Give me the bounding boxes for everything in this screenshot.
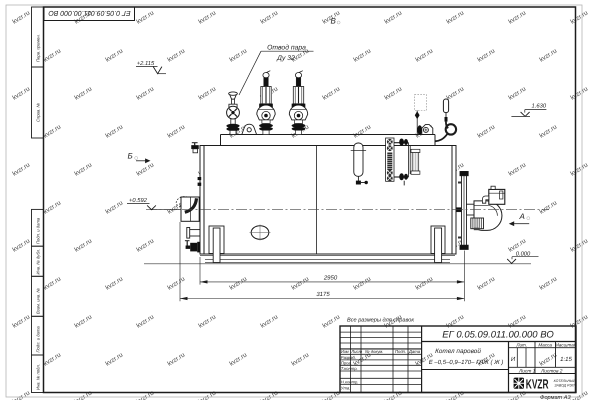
svg-text:ЗАВОД РЭП: ЗАВОД РЭП [554, 384, 575, 388]
svg-text:Перв. примен.: Перв. примен. [36, 34, 41, 62]
svg-text:В: В [331, 17, 337, 26]
svg-text:Разраб.: Разраб. [341, 355, 356, 360]
svg-text:ЕГ 0.05.09.011.00.000 ВО: ЕГ 0.05.09.011.00.000 ВО [442, 330, 554, 341]
svg-text:Формат А3: Формат А3 [540, 395, 571, 400]
svg-text:Н.контр.: Н.контр. [341, 379, 359, 384]
svg-text:1:15: 1:15 [560, 356, 572, 363]
svg-text:Котел паровой: Котел паровой [435, 348, 481, 355]
svg-text:Т.контр.: Т.контр. [341, 366, 358, 371]
svg-text:Инв. № дубл.: Инв. № дубл. [36, 249, 41, 275]
svg-text:KVZR: KVZR [526, 376, 549, 391]
svg-text:3175: 3175 [316, 291, 330, 298]
svg-text:Масштаб: Масштаб [555, 343, 577, 348]
svg-text:Подп. и дата: Подп. и дата [36, 326, 41, 353]
svg-text:Справ. №: Справ. № [36, 103, 41, 122]
svg-text:Инв. № подл.: Инв. № подл. [36, 364, 41, 390]
svg-text:Все размеры для справок: Все размеры для справок [347, 317, 414, 324]
svg-text:Утв.: Утв. [341, 385, 351, 390]
svg-text:Лист: Лист [350, 349, 362, 354]
svg-text:Отвод пара: Отвод пара [267, 45, 306, 52]
svg-text:Лит.: Лит. [515, 343, 527, 348]
svg-text:Дата: Дата [408, 349, 421, 354]
svg-text:Масса: Масса [538, 343, 552, 348]
svg-text:Подп.: Подп. [395, 349, 406, 354]
svg-text:И: И [511, 356, 516, 363]
svg-text:Б: Б [128, 152, 133, 161]
svg-text:Изм: Изм [341, 349, 349, 354]
svg-text:Взам. инв. №: Взам. инв. № [36, 288, 41, 314]
svg-text:Е –0,5–0,9–170– ГЛЖ ( Ж ): Е –0,5–0,9–170– ГЛЖ ( Ж ) [429, 359, 504, 366]
svg-text:№ докум.: № докум. [365, 349, 383, 354]
svg-text:Листов 2: Листов 2 [540, 368, 563, 374]
svg-text:Пров.: Пров. [341, 360, 352, 365]
svg-text:Лист 1: Лист 1 [518, 368, 536, 374]
svg-text:Ду 32: Ду 32 [276, 55, 295, 62]
svg-text:1.630: 1.630 [532, 103, 547, 110]
svg-text:2950: 2950 [323, 275, 338, 282]
svg-text:Подп. и дата: Подп. и дата [36, 217, 41, 244]
svg-text:А: А [519, 212, 525, 221]
svg-text:КОТЕЛЬНЫЙ: КОТЕЛЬНЫЙ [554, 378, 577, 383]
svg-text:ЕГ 0.05.09.011.00.000 ВО: ЕГ 0.05.09.011.00.000 ВО [48, 9, 131, 16]
